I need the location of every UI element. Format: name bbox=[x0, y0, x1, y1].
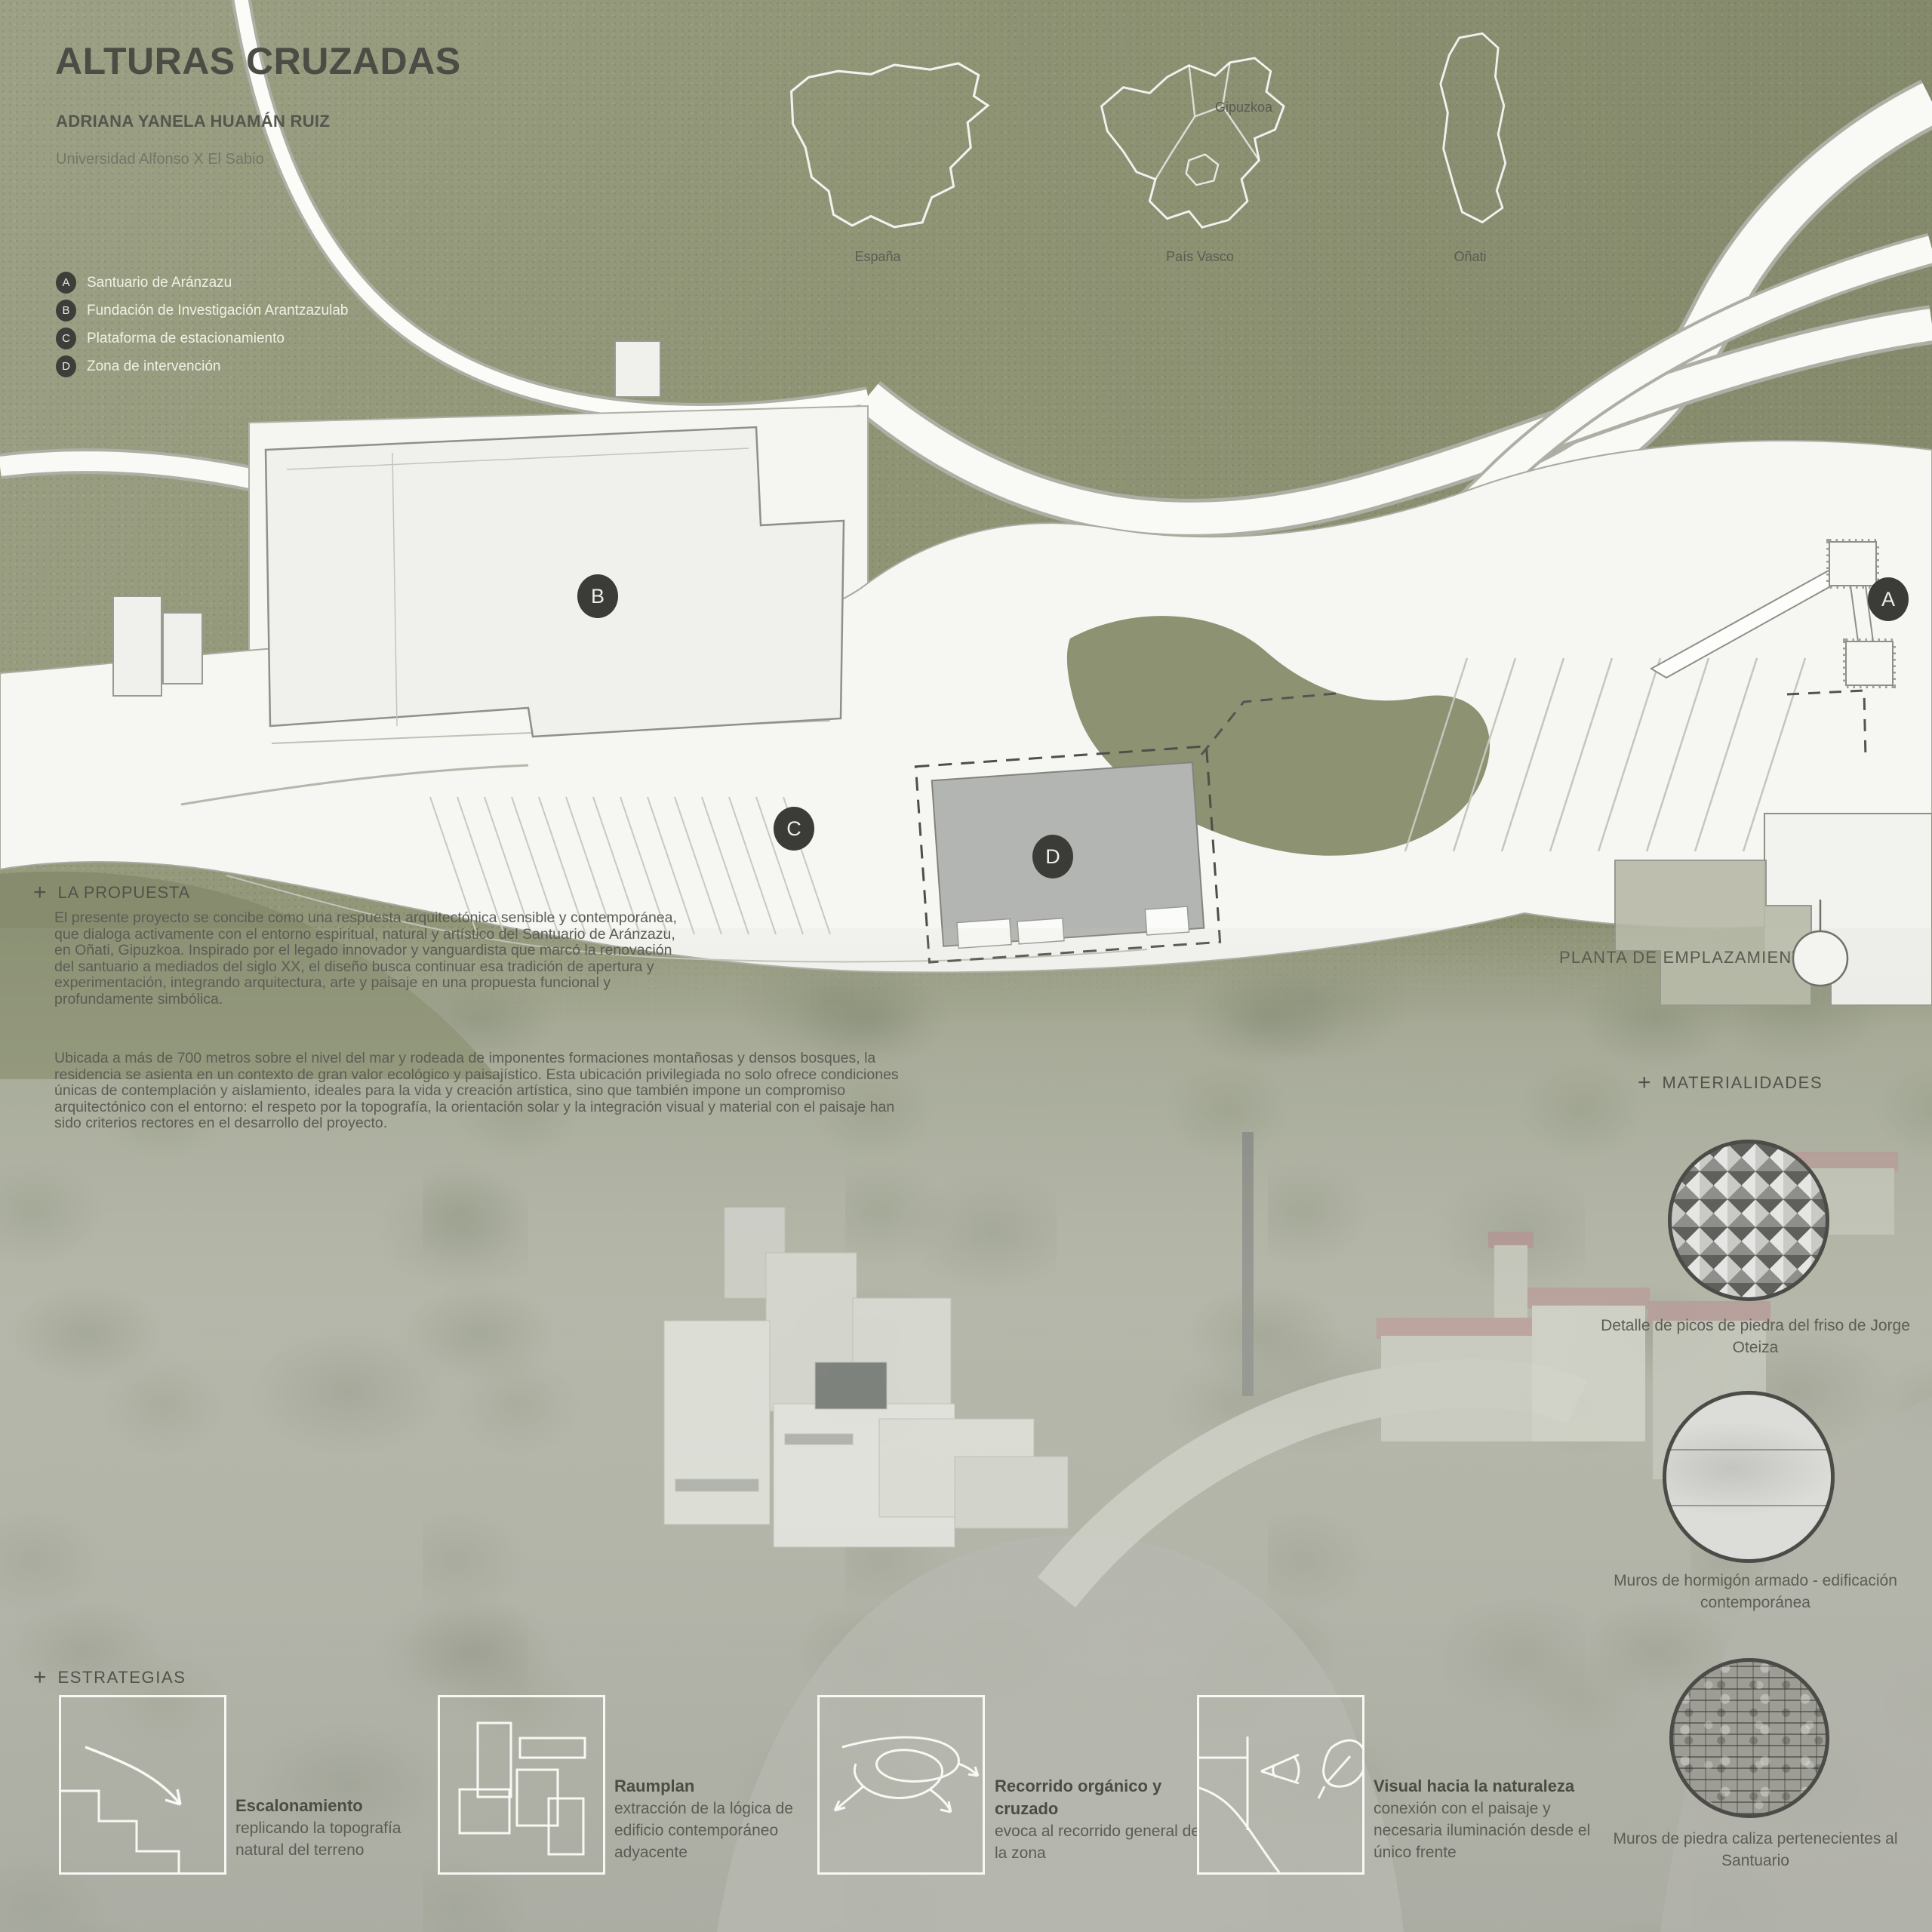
gipuzkoa-region-label: Gipuzkoa bbox=[1215, 100, 1272, 115]
material-swatch-concrete bbox=[1663, 1391, 1835, 1563]
plus-icon: + bbox=[33, 881, 47, 904]
legend-badge-b: B bbox=[56, 300, 76, 321]
strategy-text-recorrido: Recorrido orgánico y cruzado evoca al re… bbox=[995, 1775, 1200, 1864]
legend-label-c: Plataforma de estacionamiento bbox=[87, 331, 285, 347]
strategy-desc: evoca al recorrido general de la zona bbox=[995, 1820, 1200, 1864]
strategy-box-raumplan bbox=[438, 1695, 605, 1875]
page-title: ALTURAS CRUZADAS bbox=[55, 39, 461, 83]
strategy-title: Visual hacia la naturaleza bbox=[1374, 1775, 1594, 1798]
proposal-paragraph-1: El presente proyecto se concibe como una… bbox=[54, 910, 682, 1008]
view-nature-icon bbox=[1199, 1697, 1362, 1872]
strategies-heading-label: ESTRATEGIAS bbox=[58, 1668, 186, 1687]
material-swatch-limestone bbox=[1669, 1658, 1829, 1818]
plus-icon: + bbox=[1638, 1072, 1651, 1094]
organic-path-icon bbox=[820, 1697, 983, 1872]
strategy-title: Recorrido orgánico y cruzado bbox=[995, 1775, 1200, 1820]
building-b-footprint bbox=[266, 427, 844, 737]
steps-arrow-icon bbox=[61, 1697, 224, 1872]
legend-item-b: B Fundación de Investigación Arantzazula… bbox=[56, 300, 348, 321]
legend-badge-a: A bbox=[56, 272, 76, 294]
annex-building bbox=[163, 613, 202, 684]
proposal-heading-label: LA PROPUESTA bbox=[58, 883, 190, 903]
university-name: Universidad Alfonso X El Sabio bbox=[56, 151, 264, 168]
strategy-text-escalonamiento: Escalonamiento replicando la topografía … bbox=[235, 1795, 414, 1861]
legend-label-d: Zona de intervención bbox=[87, 358, 220, 375]
plus-icon: + bbox=[33, 1666, 47, 1689]
small-structure bbox=[615, 341, 660, 397]
strategy-title: Escalonamiento bbox=[235, 1795, 414, 1817]
proposal-paragraph-2: Ubicada a más de 700 metros sobre el niv… bbox=[54, 1051, 906, 1132]
plan-marker-b: B bbox=[577, 574, 618, 618]
strategy-text-visual: Visual hacia la naturaleza conexión con … bbox=[1374, 1775, 1594, 1863]
author-name: ADRIANA YANELA HUAMÁN RUIZ bbox=[56, 112, 330, 131]
strategy-desc: replicando la topografía natural del ter… bbox=[235, 1817, 414, 1861]
materials-heading: + MATERIALIDADES bbox=[1638, 1072, 1823, 1094]
legend-item-d: D Zona de intervención bbox=[56, 355, 220, 377]
legend-label-a: Santuario de Aránzazu bbox=[87, 275, 232, 291]
material-caption-3: Muros de piedra caliza pertenecientes al… bbox=[1597, 1828, 1914, 1872]
presentation-board: ALTURAS CRUZADAS ADRIANA YANELA HUAMÁN R… bbox=[0, 0, 1932, 1932]
map-label-onati: Oñati bbox=[1357, 249, 1583, 265]
map-label-pais-vasco: País Vasco bbox=[1087, 249, 1313, 265]
proposal-heading: + LA PROPUESTA bbox=[33, 881, 190, 904]
strategy-desc: extracción de la lógica de edificio cont… bbox=[614, 1798, 812, 1863]
legend-label-b: Fundación de Investigación Arantzazulab bbox=[87, 303, 348, 319]
strategy-title: Raumplan bbox=[614, 1775, 812, 1798]
strategies-heading: + ESTRATEGIAS bbox=[33, 1666, 186, 1689]
north-arrow-icon bbox=[1790, 900, 1858, 998]
legend-item-a: A Santuario de Aránzazu bbox=[56, 272, 232, 294]
spain-map-outline-icon bbox=[777, 30, 1011, 241]
strategy-box-recorrido bbox=[817, 1695, 985, 1875]
plan-marker-c: C bbox=[774, 807, 814, 851]
strategy-desc: conexión con el paisaje y necesaria ilum… bbox=[1374, 1798, 1594, 1863]
plan-marker-d: D bbox=[1032, 835, 1073, 878]
basque-country-map-outline-icon bbox=[1075, 36, 1324, 255]
material-caption-2: Muros de hormigón armado - edificación c… bbox=[1597, 1570, 1914, 1614]
plan-marker-a: A bbox=[1868, 577, 1909, 621]
legend-item-c: C Plataforma de estacionamiento bbox=[56, 328, 285, 349]
legend-badge-c: C bbox=[56, 328, 76, 349]
material-caption-1: Detalle de picos de piedra del friso de … bbox=[1597, 1315, 1914, 1358]
map-label-espana: España bbox=[764, 249, 991, 265]
material-swatch-stone-frieze bbox=[1668, 1140, 1829, 1301]
strategy-box-escalonamiento bbox=[59, 1695, 226, 1875]
strategy-text-raumplan: Raumplan extracción de la lógica de edif… bbox=[614, 1775, 812, 1863]
plan-caption: PLANTA DE EMPLAZAMIENTO bbox=[1559, 948, 1817, 968]
legend-badge-d: D bbox=[56, 355, 76, 377]
strategy-box-visual bbox=[1197, 1695, 1364, 1875]
raumplan-blocks-icon bbox=[440, 1697, 603, 1872]
annex-building bbox=[113, 596, 162, 696]
materials-heading-label: MATERIALIDADES bbox=[1663, 1073, 1823, 1093]
onati-map-outline-icon bbox=[1390, 21, 1549, 248]
